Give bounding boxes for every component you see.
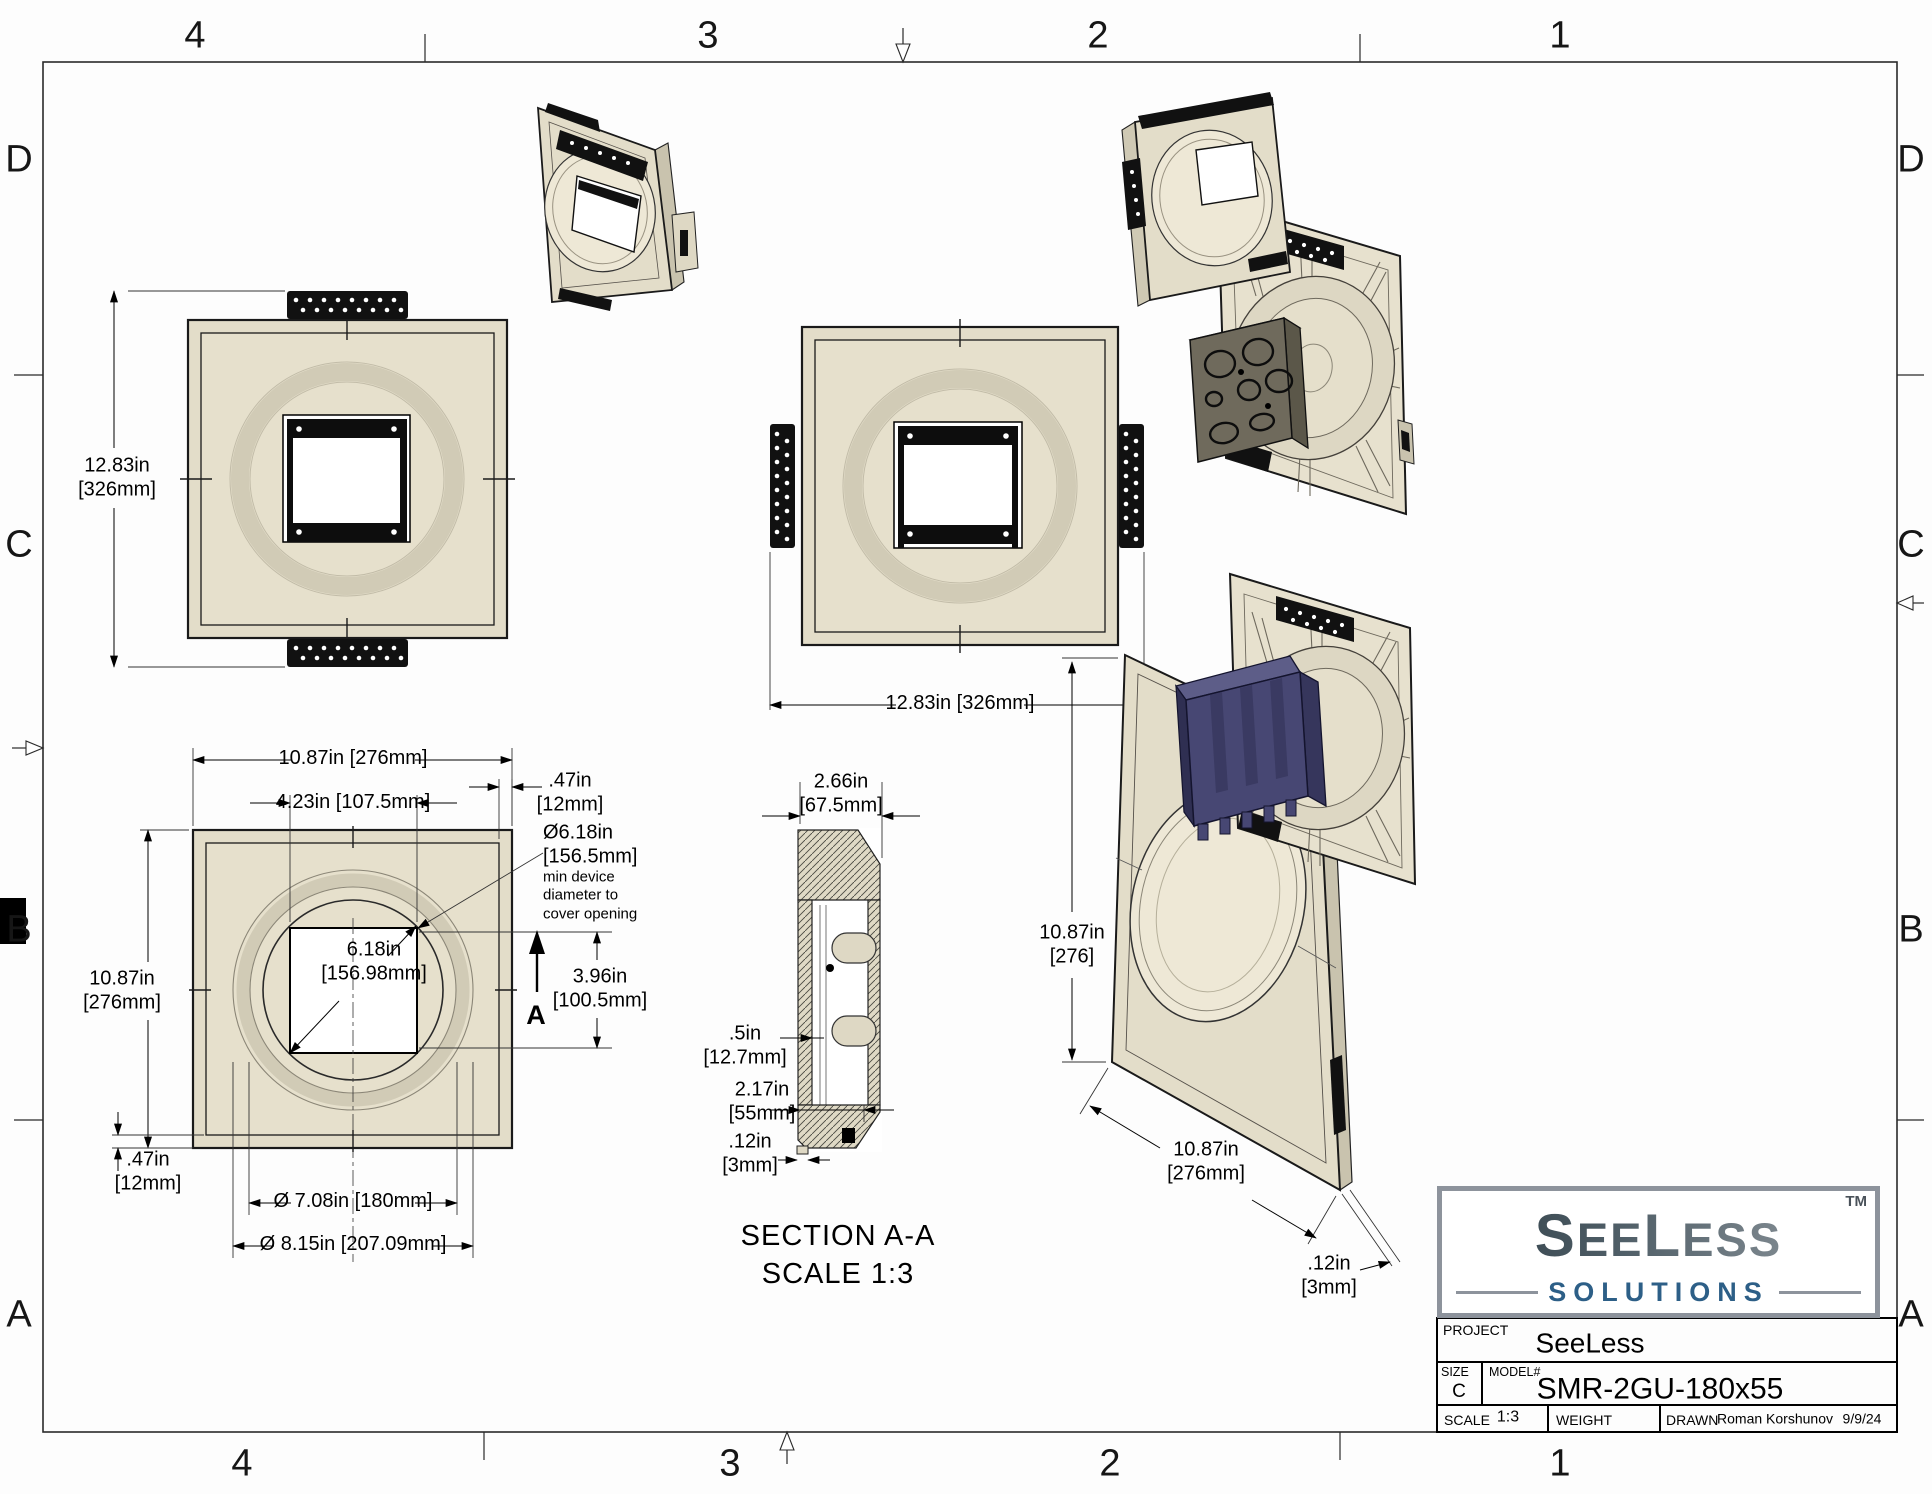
drawn-label: DRAWN bbox=[1666, 1412, 1718, 1429]
size-label: SIZE bbox=[1441, 1365, 1469, 1380]
view-small-iso-back bbox=[1122, 92, 1290, 306]
view-small-iso-front bbox=[533, 103, 698, 311]
drawing-sheet: 4 3 2 1 4 3 2 1 D C B A D C B A 12.83in … bbox=[0, 0, 1932, 1494]
logo-rule-right bbox=[1779, 1291, 1861, 1294]
logo-subtitle-row: SOLUTIONS bbox=[1456, 1277, 1861, 1308]
dim-section-tip: .12in [3mm] bbox=[722, 1130, 778, 1177]
drawn-value: Roman Korshunov bbox=[1717, 1411, 1833, 1428]
logo-rule-left bbox=[1456, 1291, 1538, 1294]
section-scale: SCALE 1:3 bbox=[762, 1257, 914, 1291]
logo-subtitle: SOLUTIONS bbox=[1548, 1277, 1769, 1308]
weight-label: WEIGHT bbox=[1556, 1412, 1612, 1429]
border-col-label: 1 bbox=[1549, 14, 1570, 59]
border-col-label: 3 bbox=[697, 14, 718, 59]
dim-opening-height: 3.96in [100.5mm] bbox=[553, 965, 647, 1012]
size-value: C bbox=[1452, 1381, 1466, 1403]
dim-plate-full-width: 12.83in [326mm] bbox=[886, 692, 1035, 716]
border-row-label: B bbox=[6, 908, 31, 953]
project-value: SeeLess bbox=[1536, 1326, 1645, 1359]
dim-section-width: 2.66in [67.5mm] bbox=[799, 770, 882, 817]
border-col-label: 4 bbox=[184, 14, 205, 59]
border-col-label: 4 bbox=[231, 1442, 252, 1487]
border-col-label: 3 bbox=[719, 1442, 740, 1487]
dim-iso-width: 10.87in [276mm] bbox=[1167, 1138, 1245, 1185]
border-row-label: C bbox=[1897, 523, 1924, 568]
border-col-label: 2 bbox=[1099, 1442, 1120, 1487]
dim-min-device-dia: Ø6.18in [156.5mm] bbox=[543, 821, 637, 868]
dim-iso-tip: .12in [3mm] bbox=[1301, 1252, 1357, 1299]
section-arrow-letter: A bbox=[526, 1000, 546, 1032]
border-row-label: C bbox=[5, 523, 32, 568]
dim-min-device-note: min device diameter to cover opening bbox=[543, 869, 637, 924]
dim-opening-diagonal: 6.18in [156.98mm] bbox=[321, 938, 427, 985]
border-col-label: 2 bbox=[1087, 14, 1108, 59]
dim-dia-outer: Ø 8.15in [207.09mm] bbox=[260, 1233, 447, 1257]
border-col-label: 1 bbox=[1549, 1442, 1570, 1487]
dim-dia-inner: Ø 7.08in [180mm] bbox=[274, 1190, 433, 1214]
dim-front-rim-bottom: .47in [12mm] bbox=[115, 1148, 182, 1195]
border-row-label: D bbox=[5, 138, 32, 183]
trademark-symbol: TM bbox=[1845, 1193, 1867, 1210]
scale-label: SCALE bbox=[1444, 1412, 1490, 1429]
section-title: SECTION A-A bbox=[741, 1219, 936, 1253]
view-rear-plate-back bbox=[770, 319, 1144, 710]
project-label: PROJECT bbox=[1443, 1322, 1508, 1339]
dim-section-lip: .5in [12.7mm] bbox=[703, 1022, 786, 1069]
border-row-label: A bbox=[6, 1293, 31, 1338]
view-rear-plate-front bbox=[114, 291, 515, 667]
model-value: SMR-2GU-180x55 bbox=[1537, 1371, 1784, 1406]
dim-iso-height: 10.87in [276] bbox=[1039, 921, 1105, 968]
date-value: 9/9/24 bbox=[1843, 1411, 1882, 1428]
dim-plate-full-height: 12.83in [326mm] bbox=[78, 454, 156, 501]
model-label: MODEL# bbox=[1489, 1365, 1540, 1380]
scale-value: 1:3 bbox=[1497, 1409, 1519, 1428]
border-row-label: B bbox=[1898, 908, 1923, 953]
border-row-label: D bbox=[1897, 138, 1924, 183]
dim-front-height: 10.87in [276mm] bbox=[83, 967, 161, 1014]
border-row-label: A bbox=[1898, 1293, 1923, 1338]
dim-front-rim-top: .47in [12mm] bbox=[537, 769, 604, 816]
dim-front-opening-width: 4.23in [107.5mm] bbox=[276, 791, 431, 815]
dim-front-width: 10.87in [276mm] bbox=[279, 747, 428, 771]
logo-wordmark: SEELESS bbox=[1442, 1201, 1875, 1270]
company-logo: SEELESS TM SOLUTIONS bbox=[1437, 1186, 1880, 1318]
dim-section-box-depth: 2.17in [55mm] bbox=[729, 1078, 796, 1125]
